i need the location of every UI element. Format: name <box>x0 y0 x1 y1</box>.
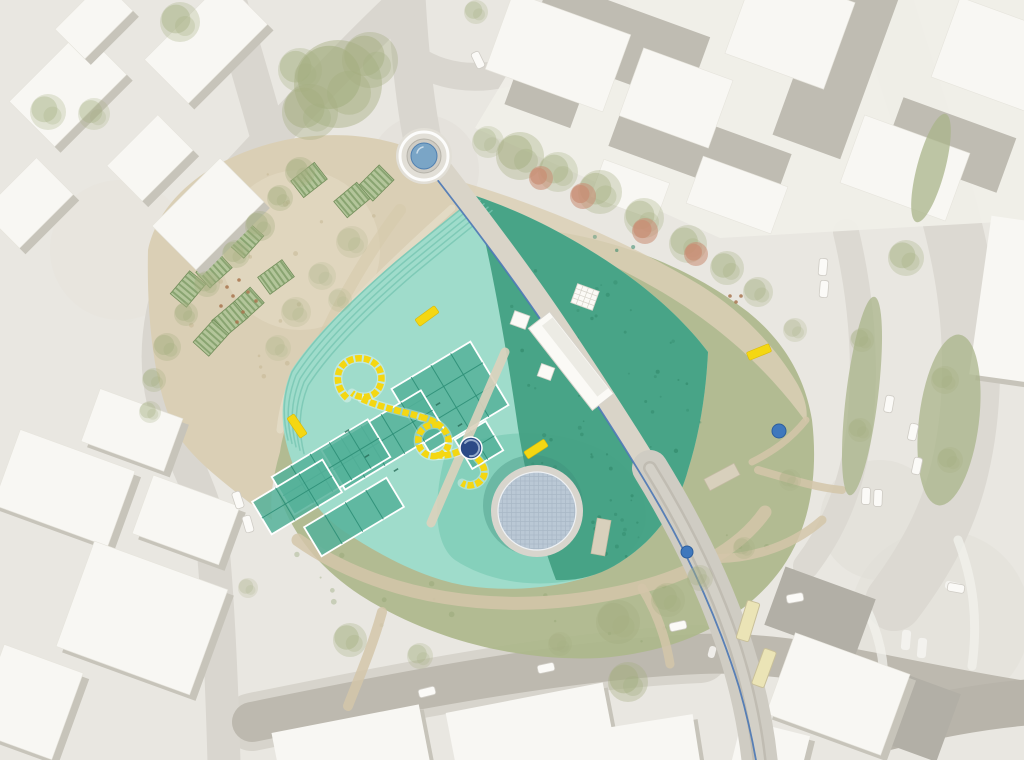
water-feature-dot <box>772 424 786 438</box>
tree <box>292 308 307 323</box>
tree <box>947 456 960 469</box>
tree <box>183 310 195 322</box>
lawn-texture <box>330 588 335 593</box>
tree <box>557 640 569 652</box>
pond-texture <box>578 426 582 430</box>
pond-texture <box>620 518 624 522</box>
tree <box>754 288 769 303</box>
sand-texture <box>259 365 262 368</box>
pond-texture <box>578 395 580 397</box>
sand-texture <box>285 361 290 366</box>
flowering-tree <box>571 185 589 203</box>
car <box>818 258 828 276</box>
pond-texture <box>674 449 678 453</box>
pond-texture <box>580 433 584 437</box>
pond-texture <box>625 555 628 558</box>
sand-texture <box>258 355 261 358</box>
pond-texture <box>595 314 598 317</box>
pond-texture <box>630 500 632 502</box>
pond-texture <box>671 339 674 342</box>
tree <box>484 137 500 153</box>
person <box>254 299 258 303</box>
tree <box>787 477 798 488</box>
car <box>873 489 882 506</box>
tree <box>204 280 217 293</box>
pond-texture <box>591 521 595 525</box>
pond-texture <box>590 455 593 458</box>
person <box>235 320 239 324</box>
person <box>739 294 743 298</box>
flowering-tree <box>633 220 651 238</box>
pond-texture <box>622 532 626 536</box>
flowering-tree <box>685 244 702 261</box>
tree <box>151 376 163 388</box>
person <box>728 294 732 298</box>
pond-texture <box>527 384 530 387</box>
pond-texture <box>542 433 546 437</box>
tree <box>613 615 635 637</box>
pond-texture <box>615 249 618 252</box>
lawn-texture <box>429 581 434 586</box>
tree <box>233 250 247 264</box>
tree <box>697 574 710 587</box>
tree <box>303 104 331 132</box>
tree <box>595 185 617 207</box>
pond-texture <box>623 528 627 532</box>
tree <box>337 296 349 308</box>
pond-texture <box>606 453 608 455</box>
car <box>819 280 829 298</box>
tree <box>44 107 62 125</box>
tree <box>348 237 364 253</box>
water-feature-dot <box>681 546 693 558</box>
pond-texture <box>615 545 619 549</box>
person <box>237 278 241 282</box>
pond-texture <box>628 373 630 375</box>
person <box>231 294 235 298</box>
lawn-texture <box>320 576 322 578</box>
person <box>241 310 245 314</box>
tree <box>902 253 920 271</box>
tree <box>164 343 178 357</box>
tree <box>859 336 871 348</box>
pond-texture <box>699 421 701 423</box>
flowering-tree <box>530 168 547 185</box>
tree <box>363 52 391 80</box>
pond-texture <box>534 387 536 389</box>
pond-texture <box>660 396 662 398</box>
pond-texture <box>510 305 513 308</box>
tree <box>346 635 363 652</box>
tree <box>319 272 333 286</box>
lawn-texture <box>331 599 337 605</box>
car <box>861 487 870 504</box>
sand-texture <box>262 374 267 379</box>
sand-texture <box>293 251 298 256</box>
tree <box>277 194 290 207</box>
lawn-texture <box>382 597 387 602</box>
pond-texture <box>686 409 689 412</box>
road-marking <box>901 630 912 651</box>
sand-texture <box>267 173 269 175</box>
tree <box>275 344 288 357</box>
pond-texture <box>549 438 552 441</box>
person <box>219 304 223 308</box>
tree <box>256 222 271 237</box>
tree <box>553 166 573 186</box>
pond-texture <box>630 309 632 311</box>
pond-texture <box>624 331 627 334</box>
lawn-texture <box>339 553 344 558</box>
person <box>246 290 250 294</box>
pond-texture <box>583 420 585 422</box>
pond-texture <box>651 410 655 414</box>
lawn-texture <box>726 534 728 536</box>
pond-texture <box>600 284 602 286</box>
person <box>225 285 229 289</box>
pond-texture <box>654 375 657 378</box>
pond-texture <box>606 293 610 297</box>
pond-texture <box>677 379 679 381</box>
tree <box>623 676 643 696</box>
tree <box>473 8 485 20</box>
tree <box>723 263 740 280</box>
pond-texture <box>590 453 592 455</box>
pond-texture <box>638 536 640 538</box>
tree <box>296 168 311 183</box>
tree <box>147 409 158 420</box>
pond-texture <box>631 245 635 249</box>
pond-texture <box>520 349 524 353</box>
pond-texture <box>670 342 672 344</box>
pond-texture <box>593 235 597 239</box>
lawn-texture <box>294 552 299 557</box>
pond-texture <box>636 521 638 523</box>
pond-texture <box>609 467 613 471</box>
tree <box>417 652 430 665</box>
sand-texture <box>320 220 323 223</box>
pond-texture <box>644 400 647 403</box>
tree <box>175 16 195 36</box>
site-plan-svg <box>0 0 1024 760</box>
pond-texture <box>631 494 634 497</box>
sand-texture <box>372 214 376 218</box>
tree <box>857 426 869 438</box>
pond-texture <box>613 280 617 284</box>
pond-texture <box>656 370 660 374</box>
pond-texture <box>576 309 579 312</box>
tree <box>664 595 681 612</box>
pond-texture <box>650 446 652 448</box>
tree <box>942 376 956 390</box>
site-plan-canvas <box>0 0 1024 760</box>
pond-texture <box>610 499 612 501</box>
lawn-texture <box>449 612 455 618</box>
tree <box>246 585 256 595</box>
lawn-texture <box>640 640 642 642</box>
sand-texture <box>279 319 283 323</box>
tree <box>792 326 804 338</box>
road-marking <box>917 638 928 659</box>
tree <box>90 109 106 125</box>
person <box>734 300 738 304</box>
tree <box>295 63 317 85</box>
lawn-texture <box>554 620 556 622</box>
pond-texture <box>686 382 689 385</box>
pond-texture <box>614 513 617 516</box>
fountain-water <box>411 143 437 169</box>
pond-texture <box>534 269 537 272</box>
tree <box>741 545 752 556</box>
pond-texture <box>590 317 593 320</box>
